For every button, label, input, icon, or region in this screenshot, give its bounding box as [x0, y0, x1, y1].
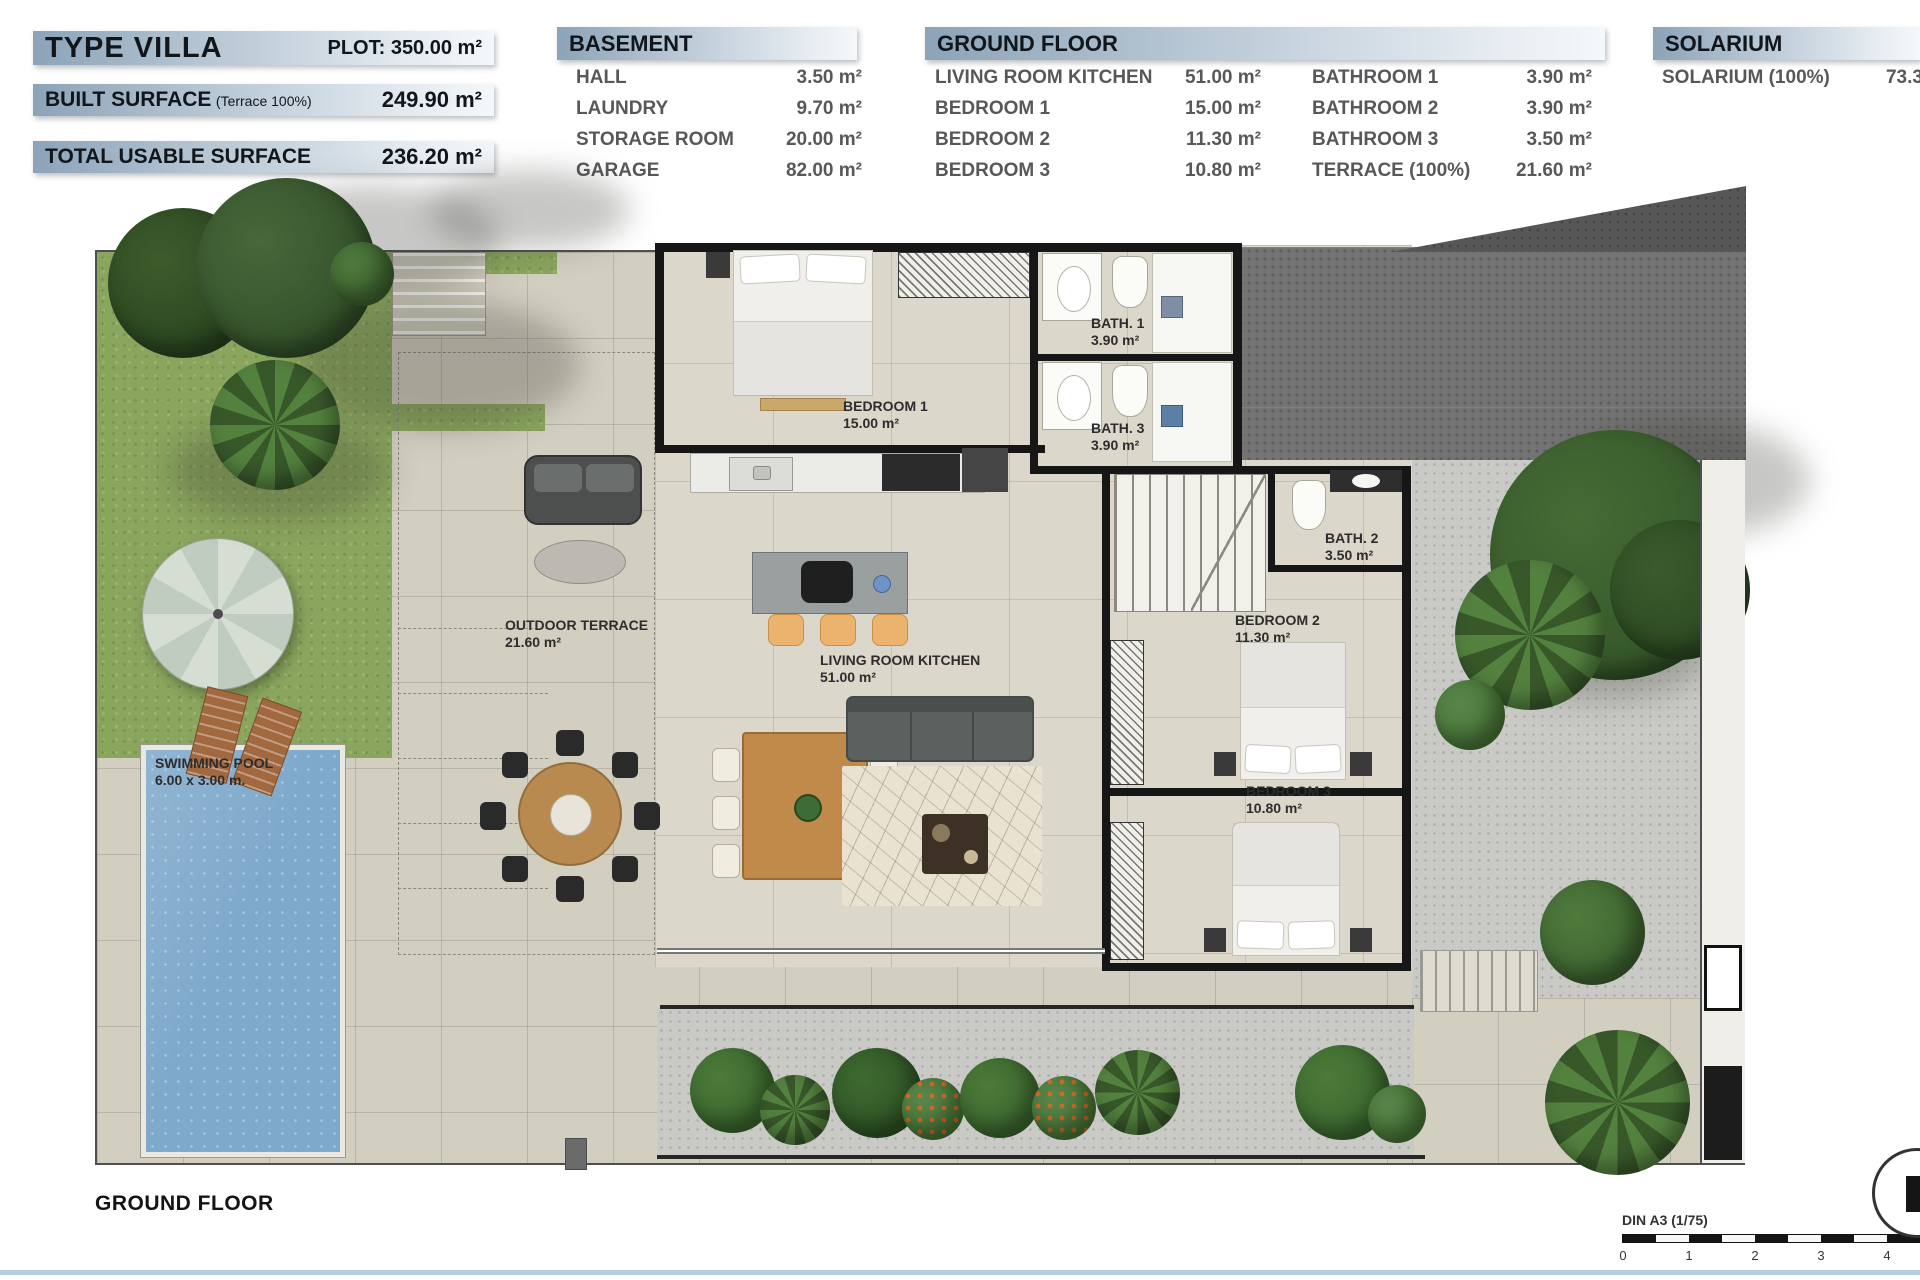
- ground-floor-header: GROUND FLOOR: [925, 27, 1605, 60]
- table-row: SOLARIUM (100%)73.30 m²: [1662, 62, 1920, 93]
- berry-bush: [1032, 1076, 1096, 1140]
- table-row: HALL3.50 m²: [576, 62, 862, 93]
- scale-label: DIN A3 (1/75): [1622, 1212, 1708, 1228]
- bar-stool: [820, 614, 856, 646]
- planter-wall-top: [660, 1005, 1414, 1009]
- table-row: GARAGE82.00 m²: [576, 155, 862, 186]
- toilet: [1112, 256, 1148, 308]
- outdoor-chair: [556, 876, 584, 902]
- solarium-header: SOLARIUM: [1653, 27, 1920, 60]
- solarium-structure: [1704, 1066, 1742, 1160]
- built-surface-note: (Terrace 100%): [216, 93, 312, 109]
- built-surface-value: 249.90 m²: [382, 87, 482, 113]
- wardrobe: [898, 252, 1030, 298]
- room-label-bedroom3: BEDROOM 310.80 m²: [1246, 783, 1331, 817]
- room-label-bedroom2: BEDROOM 211.30 m²: [1235, 612, 1320, 646]
- table-row: BATHROOM 13.90 m²: [1312, 62, 1592, 93]
- table-row: TERRACE (100%)21.60 m²: [1312, 155, 1592, 186]
- staircase: [1114, 474, 1266, 612]
- nightstand: [1350, 752, 1372, 776]
- north-indicator-needle: [1906, 1176, 1920, 1212]
- planter-wall-bottom: [657, 1155, 1425, 1159]
- solarium-title: SOLARIUM: [1665, 31, 1782, 57]
- dining-chair: [712, 796, 740, 830]
- bed: [1240, 642, 1346, 780]
- wall: [1035, 354, 1240, 361]
- bathroom-counter: [1330, 470, 1402, 492]
- table-row: BEDROOM 115.00 m²: [935, 93, 1261, 124]
- basement-header: BASEMENT: [557, 27, 857, 60]
- room-label-bedroom1: BEDROOM 115.00 m²: [843, 398, 928, 432]
- sheet-edge-line: [0, 1270, 1920, 1275]
- room-label-pool: SWIMMING POOL6.00 x 3.00 m.: [155, 755, 273, 789]
- toilet: [1112, 365, 1148, 417]
- wall: [1102, 963, 1411, 971]
- wall: [1233, 243, 1242, 471]
- shower: [1152, 362, 1232, 462]
- coffee-table: [922, 814, 988, 874]
- bar-stool: [872, 614, 908, 646]
- nightstand: [1350, 928, 1372, 952]
- table-row: BEDROOM 310.80 m²: [935, 155, 1261, 186]
- scale-tick: 2: [1748, 1248, 1762, 1263]
- built-surface-bar: BUILT SURFACE (Terrace 100%) 249.90 m²: [33, 84, 494, 116]
- table-row: LAUNDRY9.70 m²: [576, 93, 862, 124]
- dining-chair: [712, 748, 740, 782]
- shower: [1152, 253, 1232, 353]
- type-villa-bar: TYPE VILLA PLOT: 350.00 m²: [33, 31, 494, 65]
- basement-table: HALL3.50 m² LAUNDRY9.70 m² STORAGE ROOM2…: [576, 62, 862, 186]
- kitchen-island: [752, 552, 908, 614]
- terrace-grid-line: [398, 693, 548, 694]
- glass-wall: [657, 948, 1105, 954]
- room-label-living: LIVING ROOM KITCHEN51.00 m²: [820, 652, 980, 686]
- scale-tick: 0: [1616, 1248, 1630, 1263]
- bush: [1540, 880, 1645, 985]
- table-row: BATHROOM 23.90 m²: [1312, 93, 1592, 124]
- table-row: BEDROOM 211.30 m²: [935, 124, 1261, 155]
- usable-surface-bar: TOTAL USABLE SURFACE 236.20 m²: [33, 141, 494, 173]
- ground-floor-table-left: LIVING ROOM KITCHEN51.00 m² BEDROOM 115.…: [935, 62, 1261, 186]
- parasol: [142, 538, 294, 690]
- bed: [733, 250, 873, 396]
- scale-bar: [1622, 1234, 1920, 1243]
- terrace-grid-line: [398, 888, 548, 889]
- scale-tick: 4: [1880, 1248, 1894, 1263]
- sofa: [846, 696, 1034, 762]
- berry-bush: [902, 1078, 964, 1140]
- bush: [330, 242, 394, 306]
- wardrobe: [1110, 640, 1144, 785]
- ground-floor-title: GROUND FLOOR: [937, 31, 1118, 57]
- scale-tick: 3: [1814, 1248, 1828, 1263]
- wall: [1402, 466, 1411, 971]
- outdoor-chair: [480, 802, 506, 830]
- usable-surface-label: TOTAL USABLE SURFACE: [45, 145, 311, 169]
- villa-type-title: TYPE VILLA: [45, 32, 223, 65]
- bush: [960, 1058, 1040, 1138]
- plot-size: PLOT: 350.00 m²: [327, 37, 482, 60]
- solarium-strip: [1700, 460, 1745, 1163]
- toilet: [1292, 480, 1326, 530]
- ground-floor-table-right: BATHROOM 13.90 m² BATHROOM 23.90 m² BATH…: [1312, 62, 1592, 186]
- built-surface-label: BUILT SURFACE (Terrace 100%): [45, 88, 312, 112]
- wall: [1102, 466, 1110, 971]
- outdoor-chair: [612, 752, 638, 778]
- kitchen-tall-unit: [962, 448, 1008, 492]
- room-label-bath3: BATH. 33.90 m²: [1091, 420, 1144, 454]
- exterior-stairs: [1420, 950, 1538, 1012]
- outdoor-chair: [502, 856, 528, 882]
- bar-stool: [768, 614, 804, 646]
- room-label-terrace: OUTDOOR TERRACE21.60 m²: [505, 617, 648, 651]
- usable-surface-value: 236.20 m²: [382, 144, 482, 170]
- bed-bench: [760, 398, 846, 411]
- palm-tree: [760, 1075, 830, 1145]
- driveway-wedge: [1390, 186, 1746, 252]
- bush: [1368, 1085, 1426, 1143]
- room-label-bath1: BATH. 13.90 m²: [1091, 315, 1144, 349]
- wall: [655, 243, 664, 453]
- floorplan-sheet: TYPE VILLA PLOT: 350.00 m² BUILT SURFACE…: [0, 0, 1920, 1280]
- kitchen-counter: [690, 453, 985, 493]
- wall: [1268, 565, 1411, 572]
- nightstand: [706, 252, 730, 278]
- bush: [1435, 680, 1505, 750]
- nightstand: [1214, 752, 1236, 776]
- dining-chair: [712, 844, 740, 878]
- palm-tree: [210, 360, 340, 490]
- basement-title: BASEMENT: [569, 31, 692, 57]
- garden-light: [565, 1138, 587, 1170]
- table-row: BATHROOM 33.50 m²: [1312, 124, 1592, 155]
- palm-tree: [1545, 1030, 1690, 1175]
- table-row: STORAGE ROOM20.00 m²: [576, 124, 862, 155]
- table-row: LIVING ROOM KITCHEN51.00 m²: [935, 62, 1261, 93]
- room-label-bath2: BATH. 23.50 m²: [1325, 530, 1378, 564]
- palm-tree: [1095, 1050, 1180, 1135]
- outdoor-sofa: [524, 455, 642, 525]
- outdoor-chair: [556, 730, 584, 756]
- nightstand: [1204, 928, 1226, 952]
- solarium-table: SOLARIUM (100%)73.30 m²: [1662, 62, 1920, 93]
- outdoor-chair: [612, 856, 638, 882]
- bathroom-vanity: [1042, 253, 1102, 321]
- scale-tick: 1: [1682, 1248, 1696, 1263]
- outdoor-dining-table: [518, 762, 622, 866]
- sheet-title: GROUND FLOOR: [95, 1192, 274, 1216]
- bed: [1232, 822, 1340, 956]
- outdoor-chair: [634, 802, 660, 830]
- swimming-pool: [141, 745, 345, 1157]
- tree-shadow: [430, 170, 630, 250]
- wall: [1268, 466, 1275, 572]
- solarium-stair-box: [1704, 945, 1742, 1011]
- wardrobe: [1110, 822, 1144, 960]
- outdoor-chair: [502, 752, 528, 778]
- outdoor-coffee-table: [534, 540, 626, 584]
